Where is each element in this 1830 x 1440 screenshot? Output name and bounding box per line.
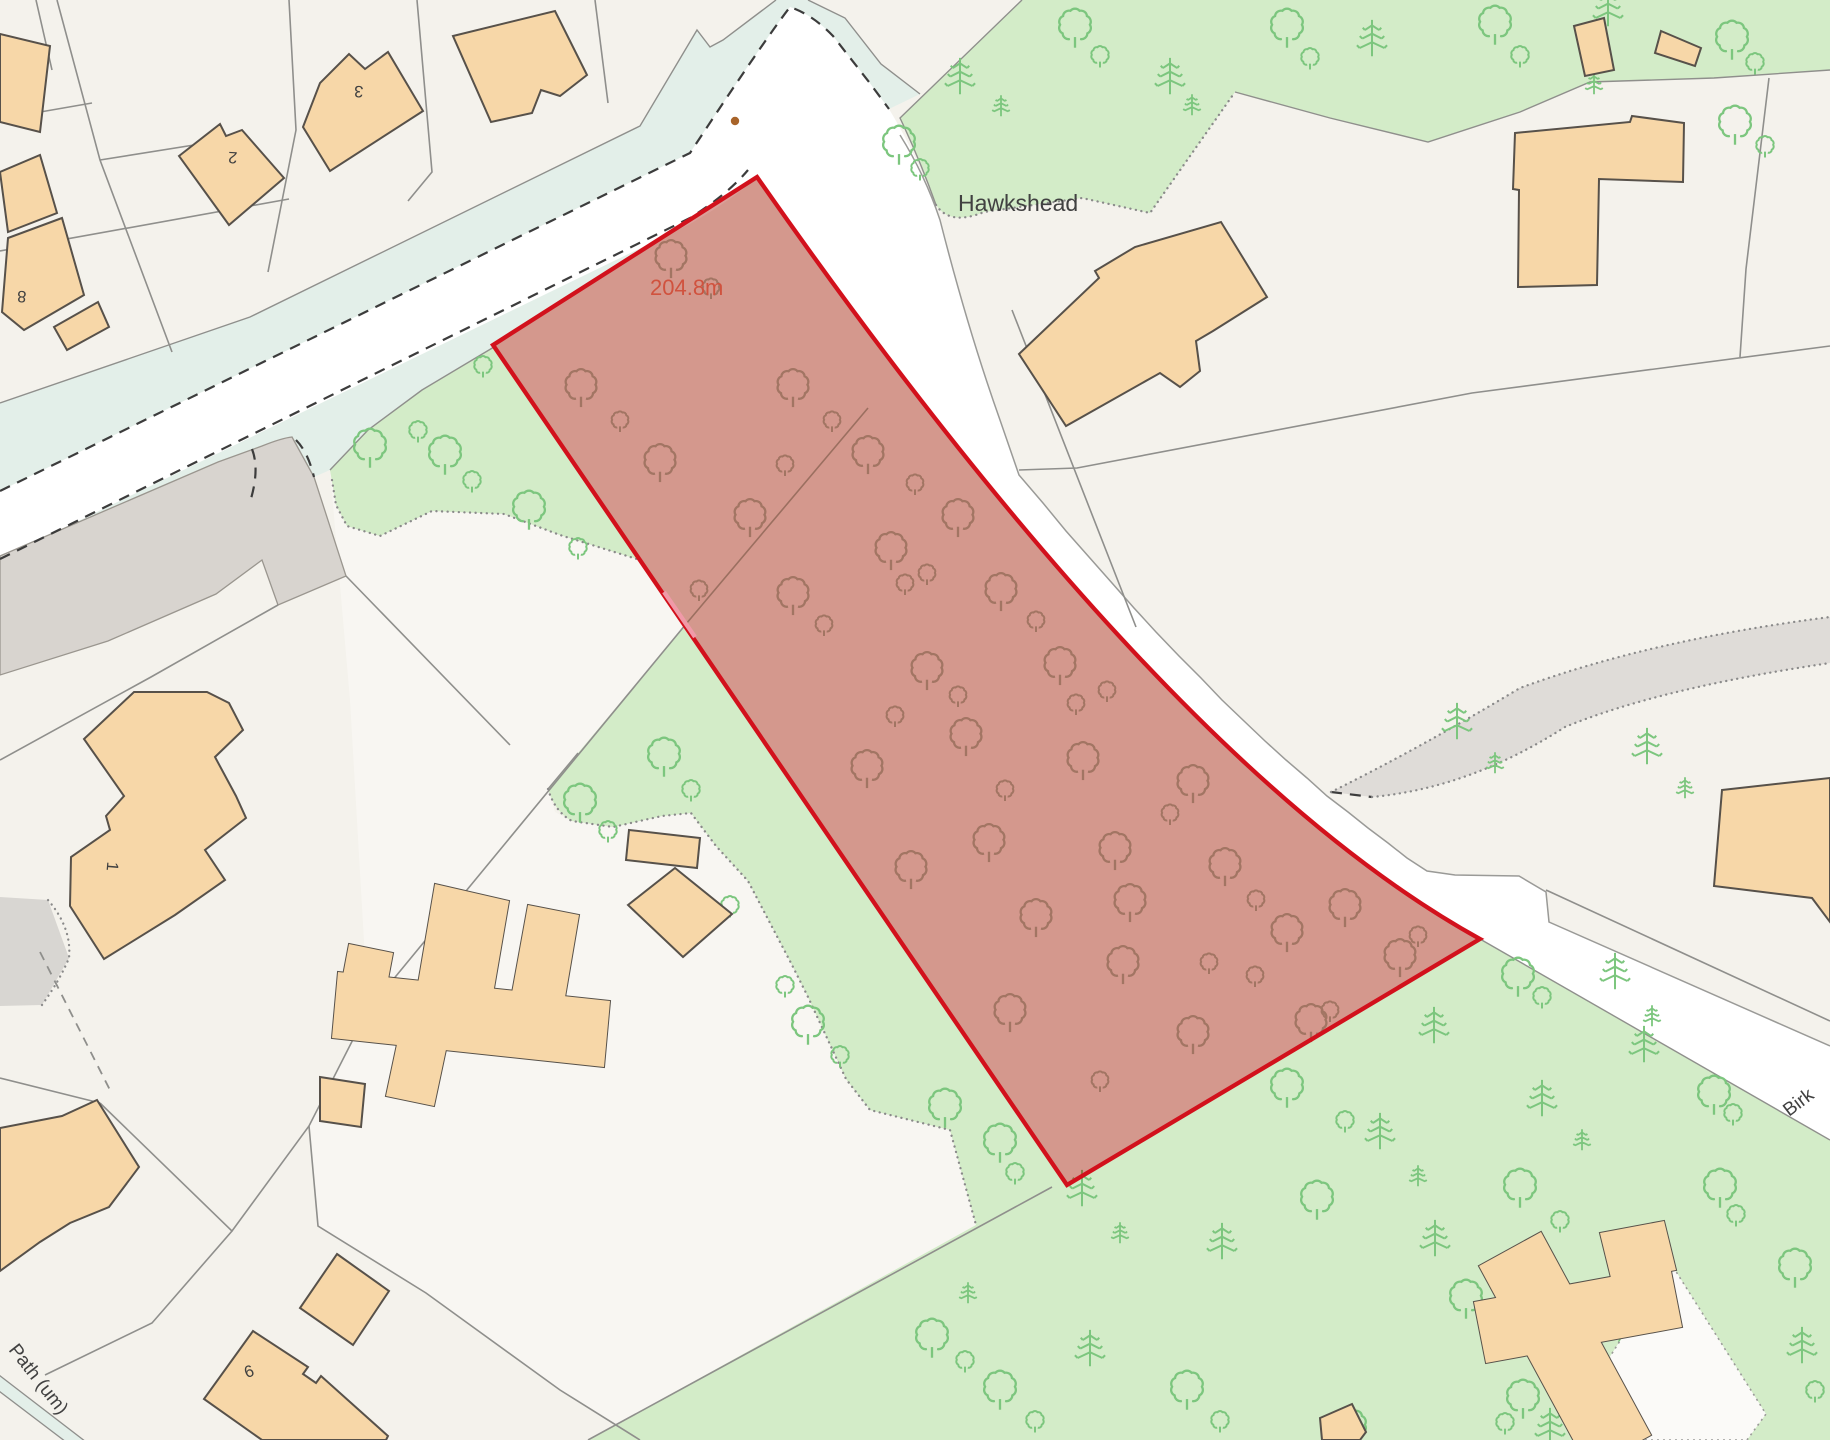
svg-text:Hawkshead: Hawkshead [958,190,1078,216]
svg-text:8: 8 [17,287,27,305]
svg-text:3: 3 [354,82,364,100]
svg-text:1: 1 [103,861,122,872]
svg-text:2: 2 [228,148,238,166]
svg-text:204.8m: 204.8m [650,275,723,300]
